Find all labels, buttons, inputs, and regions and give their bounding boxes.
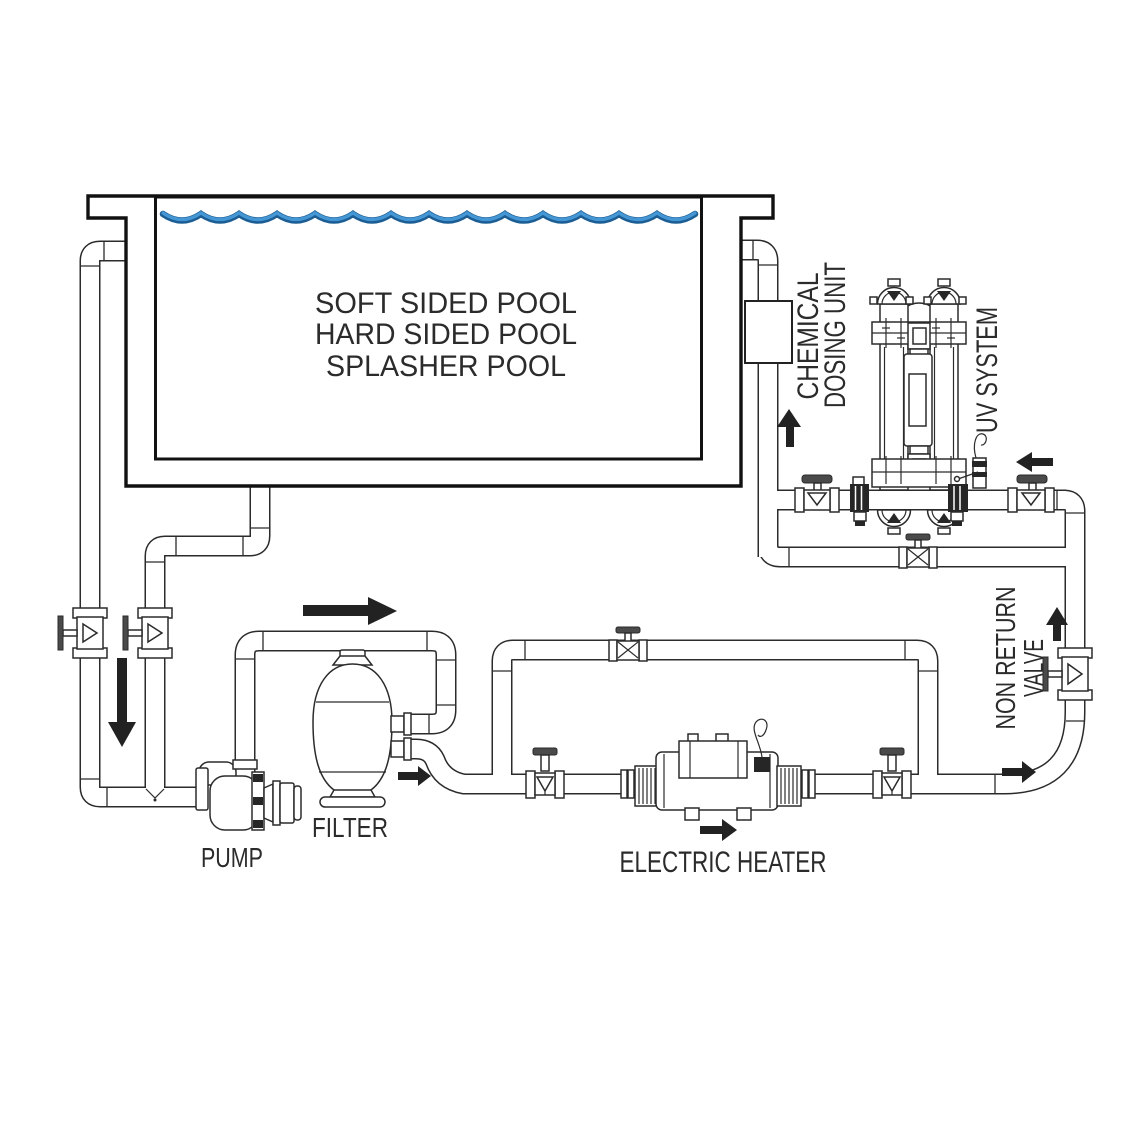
electric-heater-label: ELECTRIC HEATER bbox=[620, 846, 827, 879]
non-return-valve-label-line1: NON RETURN bbox=[990, 587, 1021, 730]
flow-arrow-down-suction bbox=[108, 658, 136, 747]
pool-label-line1: SOFT SIDED POOL bbox=[315, 287, 577, 320]
valve-heater-bypass-icon bbox=[609, 627, 647, 661]
diagram-canvas: SOFT SIDED POOL HARD SIDED POOL SPLASHER… bbox=[0, 0, 1130, 1130]
flow-arrow-up-return bbox=[777, 409, 801, 447]
flow-arrow-heater bbox=[700, 819, 737, 841]
uv-flange-left-icon bbox=[850, 477, 869, 526]
filter-inlet-port bbox=[391, 716, 404, 732]
heater-cable-gland bbox=[754, 757, 770, 772]
heater-union-left-icon bbox=[621, 766, 659, 806]
flow-arrow-pump-to-filter bbox=[303, 597, 397, 625]
pool-label-line2: HARD SIDED POOL bbox=[315, 318, 577, 351]
pool-label-line3: SPLASHER POOL bbox=[326, 350, 566, 383]
pump-label: PUMP bbox=[201, 842, 263, 873]
uv-system-label: UV SYSTEM bbox=[971, 307, 1004, 433]
heater-foot bbox=[737, 808, 751, 820]
non-return-valve-icon bbox=[1043, 648, 1092, 700]
valve-uv-outlet-icon bbox=[795, 475, 839, 512]
uv-flange-right-icon bbox=[948, 484, 968, 526]
valve-uv-bypass-icon bbox=[899, 534, 937, 568]
flow-arrow-into-uv bbox=[1016, 452, 1053, 472]
filter-label: FILTER bbox=[312, 812, 388, 843]
flow-arrow-filter-out bbox=[398, 766, 431, 786]
heater-control-box bbox=[679, 741, 747, 778]
valve-uv-inlet-icon bbox=[1008, 475, 1054, 512]
electric-heater bbox=[621, 719, 815, 820]
chemical-dosing-unit bbox=[745, 301, 792, 363]
pool: SOFT SIDED POOL HARD SIDED POOL SPLASHER… bbox=[88, 196, 773, 486]
valve-drain-line-icon bbox=[123, 608, 172, 658]
valve-skimmer-line-icon bbox=[58, 608, 107, 658]
chemical-dosing-label-line2: DOSING UNIT bbox=[819, 262, 852, 408]
uv-dome-bottom-left-icon bbox=[878, 510, 911, 534]
uv-dome-top-right-icon bbox=[924, 279, 966, 304]
filter bbox=[313, 650, 411, 807]
filter-outlet-port bbox=[391, 741, 404, 757]
pool-plumbing-diagram: SOFT SIDED POOL HARD SIDED POOL SPLASHER… bbox=[0, 0, 1130, 1130]
pool-label: SOFT SIDED POOL HARD SIDED POOL SPLASHER… bbox=[315, 287, 577, 383]
heater-foot bbox=[685, 808, 699, 820]
non-return-valve-label-line2: VALVE bbox=[1018, 639, 1049, 697]
heater-union-right-icon bbox=[777, 766, 815, 806]
uv-dome-top-left-icon bbox=[870, 279, 913, 304]
valve-heater-outlet-icon bbox=[873, 748, 911, 798]
valve-heater-inlet-icon bbox=[526, 748, 564, 798]
